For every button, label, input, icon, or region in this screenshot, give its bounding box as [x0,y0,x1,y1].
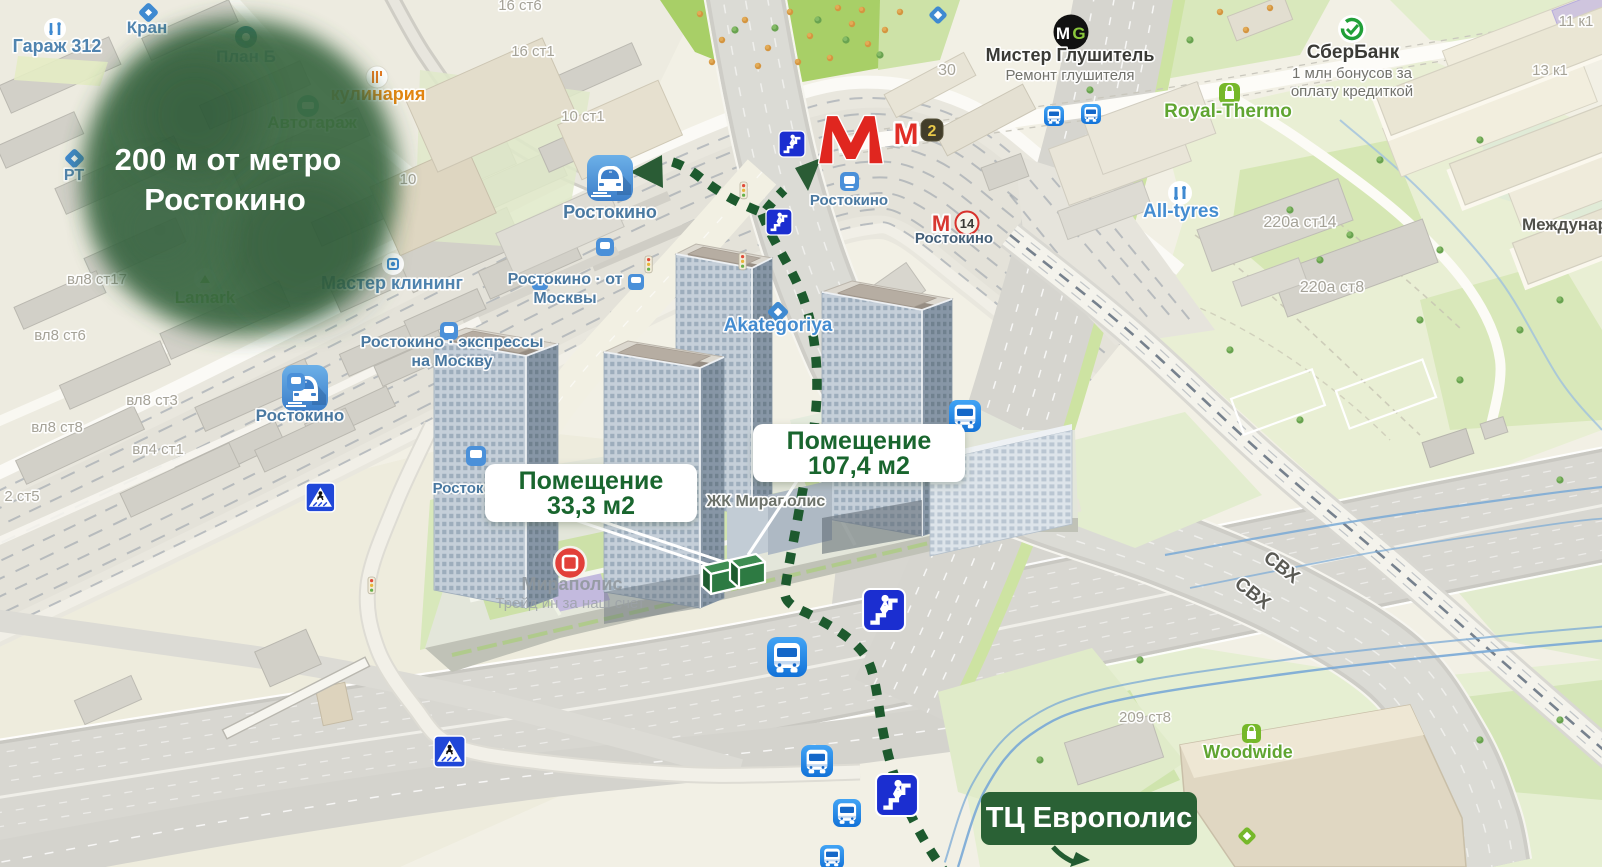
svg-text:1 млн бонусов за: 1 млн бонусов за [1292,65,1413,82]
svg-text:Ростокино: Ростокино [563,202,657,222]
svg-text:М: М [894,118,919,151]
svg-text:Akategoriya: Akategoriya [724,315,833,336]
svg-text:Кран: Кран [127,18,167,37]
svg-text:Ростокино: Ростокино [144,182,306,217]
svg-text:Ростокино: Ростокино [810,192,888,209]
svg-text:G: G [1072,24,1085,43]
svg-text:Гараж 312: Гараж 312 [13,36,102,56]
svg-text:вл8 ст8: вл8 ст8 [31,419,83,436]
svg-text:Ремонт глушителя: Ремонт глушителя [1006,67,1135,84]
svg-text:11 к1: 11 к1 [1559,13,1594,30]
svg-text:16 ст1: 16 ст1 [511,43,555,60]
svg-text:33,3 м2: 33,3 м2 [547,492,635,520]
svg-text:Royal-Thermo: Royal-Thermo [1164,101,1292,122]
svg-text:Помещение: Помещение [787,427,932,455]
svg-text:вл8 ст6: вл8 ст6 [34,327,86,344]
svg-text:ТЦ Европолис: ТЦ Европолис [986,802,1192,834]
svg-text:на Москву: на Москву [411,353,492,370]
svg-text:Ростокино: Ростокино [915,230,993,247]
svg-text:Росток: Росток [433,480,484,497]
svg-text:13 к1: 13 к1 [1532,62,1568,79]
svg-text:Трейд ин за наш счет: Трейд ин за наш счет [495,595,644,612]
svg-text:2: 2 [928,123,937,140]
svg-text:ЖК Мираполис: ЖК Мираполис [706,493,826,510]
svg-text:200 м от метро: 200 м от метро [115,142,342,177]
svg-text:107,4 м2: 107,4 м2 [808,452,910,480]
svg-text:РТ: РТ [64,167,84,184]
svg-text:209 ст8: 209 ст8 [1119,709,1171,726]
svg-text:оплату кредиткой: оплату кредиткой [1291,83,1413,100]
svg-text:Помещение: Помещение [519,467,664,495]
svg-text:Москвы: Москвы [533,290,596,307]
svg-text:вл4 ст1: вл4 ст1 [132,441,184,458]
svg-text:2 ст5: 2 ст5 [4,488,39,505]
svg-text:Мистер Глушитель: Мистер Глушитель [986,45,1155,65]
svg-text:Международн: Международн [1522,215,1602,234]
svg-text:All-tyres: All-tyres [1143,201,1219,222]
svg-text:10: 10 [400,171,417,188]
svg-text:СберБанк: СберБанк [1307,42,1400,63]
svg-text:220а ст8: 220а ст8 [1300,279,1364,296]
svg-text:220а ст14: 220а ст14 [1263,214,1336,231]
svg-text:Ростокино · от: Ростокино · от [508,271,623,288]
svg-text:вл8 ст3: вл8 ст3 [126,392,178,409]
svg-text:14: 14 [960,216,975,231]
svg-text:10 ст1: 10 ст1 [561,108,605,125]
svg-text:Мираполис: Мираполис [522,574,623,594]
svg-text:Ростокино: Ростокино [256,406,345,425]
svg-text:30: 30 [938,62,956,79]
svg-text:M: M [1056,24,1070,43]
svg-text:16 ст6: 16 ст6 [498,0,542,14]
svg-text:Ростокино · экспрессы: Ростокино · экспрессы [361,334,544,351]
svg-text:Woodwide: Woodwide [1203,742,1293,762]
